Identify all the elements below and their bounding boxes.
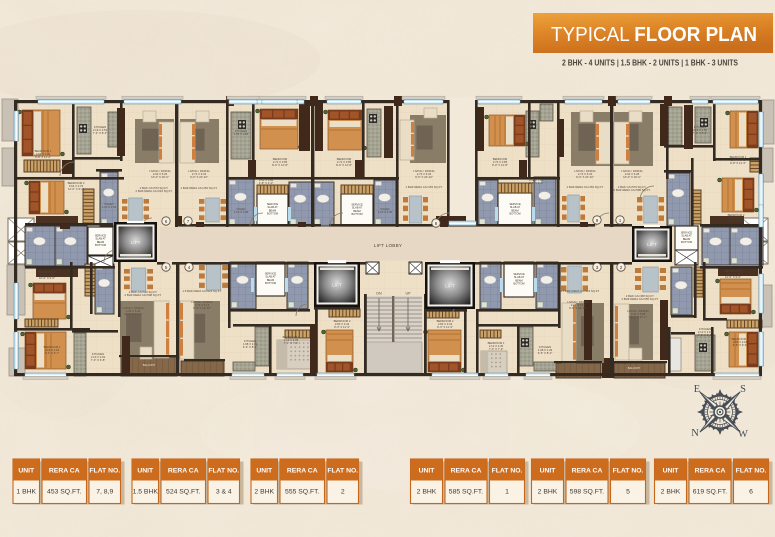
svg-text:BEDROOM 12.94 X 3.429'-8" X 11: BEDROOM 12.94 X 3.429'-8" X 11'-3" <box>35 149 52 159</box>
svg-text:FLAT NO.: FLAT NO. <box>208 468 239 475</box>
svg-text:FLAT NO.: FLAT NO. <box>492 468 523 475</box>
svg-text:BEDROOM 12.84 X 2.929'-4" X 9': BEDROOM 12.84 X 2.929'-4" X 9'-7" <box>44 345 61 355</box>
svg-text:9: 9 <box>596 218 599 223</box>
svg-text:UNIT: UNIT <box>18 468 35 475</box>
svg-text:BEDROOM 12.12 X 2.357'-0" X 7': BEDROOM 12.12 X 2.357'-0" X 7'-9" <box>488 341 505 351</box>
svg-text:BEDROOM 22.82 X 3.429'-3" X 11: BEDROOM 22.82 X 3.429'-3" X 11'-3" <box>437 319 454 329</box>
svg-text:RERA CA: RERA CA <box>168 468 199 475</box>
svg-text:KITCHEN2.19 X 2.527'-2" X 8'-3: KITCHEN2.19 X 2.527'-2" X 8'-3" <box>693 125 708 135</box>
svg-text:BEDROOM2.74 X 3.859'-0" X 12'-: BEDROOM2.74 X 3.859'-0" X 12'-8" <box>492 157 508 167</box>
svg-text:BEDROOM 12.12 X 2.357'-0" X 7': BEDROOM 12.12 X 2.357'-0" X 7'-9" <box>283 335 300 345</box>
svg-text:BEDROOM2.74 X 3.859'-0" X 12'-: BEDROOM2.74 X 3.859'-0" X 12'-8" <box>336 157 352 167</box>
svg-text:2 BHK: 2 BHK <box>538 489 558 496</box>
svg-text:BOTTOM: BOTTOM <box>351 212 362 216</box>
svg-text:BEDROOM 23.64 X 2.7612'-0" X 9: BEDROOM 23.64 X 2.7612'-0" X 9'-4" <box>68 181 85 191</box>
svg-text:KITCHEN1.98 X 2.496'-6" X 8'-2: KITCHEN1.98 X 2.496'-6" X 8'-2" <box>243 339 258 349</box>
svg-text:FLAT NO.: FLAT NO. <box>327 468 358 475</box>
svg-text:1 BHK: 1 BHK <box>16 489 36 496</box>
svg-text:LIFT: LIFT <box>131 240 141 246</box>
svg-text:FLAT NO.: FLAT NO. <box>89 468 120 475</box>
svg-text:UNIT: UNIT <box>137 468 154 475</box>
svg-text:2 BHK - 4 UNITS | 1.5 BHK - 2: 2 BHK - 4 UNITS | 1.5 BHK - 2 UNITS | 1 … <box>562 59 738 68</box>
svg-text:1.5 BHK RERA CA=524 SQ.FT.: 1.5 BHK RERA CA=524 SQ.FT. <box>560 289 599 293</box>
svg-text:BOTTOM: BOTTOM <box>509 212 520 216</box>
svg-text:3: 3 <box>596 265 599 270</box>
svg-text:BALCONY: BALCONY <box>143 363 156 367</box>
svg-text:1 BHK RERA CA=453 SQ.FT.: 1 BHK RERA CA=453 SQ.FT. <box>181 186 218 190</box>
svg-text:BEDROOM2.74 X 3.859'-0" X 12'-: BEDROOM2.74 X 3.859'-0" X 12'-8" <box>272 157 288 167</box>
svg-text:BOTTOM: BOTTOM <box>513 282 524 286</box>
svg-text:1 BHK RERA CA=453 SQ.FT.: 1 BHK RERA CA=453 SQ.FT. <box>567 185 604 189</box>
svg-text:S: S <box>740 384 746 395</box>
svg-text:6: 6 <box>165 219 168 224</box>
svg-text:RERA CA: RERA CA <box>451 468 482 475</box>
svg-text:N: N <box>691 428 699 439</box>
svg-text:KITCHEN1.55 X 2.85: KITCHEN1.55 X 2.85 <box>234 129 249 136</box>
svg-text:619 SQ.FT.: 619 SQ.FT. <box>693 489 727 496</box>
svg-text:BEDROOM 23.04 X 2.7412'-0" X 9: BEDROOM 23.04 X 2.7412'-0" X 9'-0" <box>725 269 742 279</box>
svg-text:2 BHK CA=530 SQ.FT.2 BHK RERA: 2 BHK CA=530 SQ.FT.2 BHK RERA CA=598 SQ.… <box>125 290 162 297</box>
svg-text:UNIT: UNIT <box>256 468 273 475</box>
svg-text:7: 7 <box>187 219 190 224</box>
svg-text:KITCHEN2.19 X 2.527'-2" X 8'-3: KITCHEN2.19 X 2.527'-2" X 8'-3" <box>93 125 108 135</box>
svg-text:KITCHEN2.10 X 2.027'-0" X 6'-8: KITCHEN2.10 X 2.027'-0" X 6'-8" <box>698 327 713 337</box>
svg-text:BOTTOM: BOTTOM <box>95 243 106 247</box>
svg-text:598 SQ.FT.: 598 SQ.FT. <box>570 489 604 496</box>
svg-text:2 BHK CA=570 SQ.FT.2 BHK RERA: 2 BHK CA=570 SQ.FT.2 BHK RERA CA=619 SQ.… <box>136 186 173 193</box>
svg-text:5: 5 <box>626 489 630 496</box>
svg-text:KITCHEN1.98 X 2.496'-6" X 8'-2: KITCHEN1.98 X 2.496'-6" X 8'-2" <box>538 345 553 355</box>
svg-text:3 & 4: 3 & 4 <box>216 489 232 496</box>
svg-text:RERA CA: RERA CA <box>572 468 603 475</box>
svg-text:BEDROOM 23.04 X 2.7410'-0" X 9: BEDROOM 23.04 X 2.7410'-0" X 9'-0" <box>39 270 56 280</box>
svg-text:LIFT: LIFT <box>445 284 455 290</box>
svg-text:2 BHK: 2 BHK <box>417 489 437 496</box>
svg-text:1: 1 <box>619 218 622 223</box>
svg-text:LIFT: LIFT <box>332 283 342 289</box>
svg-text:1.5 BHK RERA CA=524 SQ.FT.: 1.5 BHK RERA CA=524 SQ.FT. <box>182 289 221 293</box>
svg-text:RERA CA: RERA CA <box>695 468 726 475</box>
svg-text:FLAT NO.: FLAT NO. <box>736 468 767 475</box>
svg-text:453 SQ.FT.: 453 SQ.FT. <box>47 489 81 496</box>
svg-text:8: 8 <box>435 221 438 226</box>
svg-text:BOTTOM: BOTTOM <box>265 281 276 285</box>
svg-text:BEDROOM 12.84 X 2.929'-8" X 9': BEDROOM 12.84 X 2.929'-8" X 9'-6" <box>732 337 749 347</box>
svg-text:2 BHK: 2 BHK <box>254 489 274 496</box>
svg-text:2 BHK CA=579 SQ.FT.2 BHK RERA: 2 BHK CA=579 SQ.FT.2 BHK RERA CA=585 SQ.… <box>614 185 651 192</box>
svg-text:UNIT: UNIT <box>419 468 436 475</box>
svg-text:KITCHEN2.10 X 2.027'-0" X 6'-8: KITCHEN2.10 X 2.027'-0" X 6'-8" <box>91 352 106 362</box>
svg-text:RERA CA: RERA CA <box>49 468 80 475</box>
svg-text:2: 2 <box>341 489 345 496</box>
svg-text:BEDROOM 23.64 X 2.7612'-0" X 9: BEDROOM 23.64 X 2.7612'-0" X 9'-4" <box>728 213 745 223</box>
svg-text:DN: DN <box>376 292 382 296</box>
svg-text:5: 5 <box>165 265 168 270</box>
svg-text:W: W <box>738 429 748 440</box>
svg-text:BOTTOM: BOTTOM <box>267 212 278 216</box>
svg-text:1.5 BHK: 1.5 BHK <box>133 489 159 496</box>
svg-text:RERA CA: RERA CA <box>287 468 318 475</box>
svg-text:524 SQ.FT.: 524 SQ.FT. <box>166 489 200 496</box>
svg-text:E: E <box>694 384 700 395</box>
svg-text:1: 1 <box>505 489 509 496</box>
svg-text:LIFT LOBBY: LIFT LOBBY <box>374 243 402 248</box>
svg-text:UP: UP <box>406 292 412 296</box>
svg-text:FLAT NO.: FLAT NO. <box>613 468 644 475</box>
svg-text:BEDROOM 22.82 X 3.429'-3" X 11: BEDROOM 22.82 X 3.429'-3" X 11'-3" <box>334 319 351 329</box>
svg-text:0.52 X 0.661'-8" X 2'-0": 0.52 X 0.661'-8" X 2'-0" <box>529 178 544 185</box>
svg-text:LIFT: LIFT <box>647 242 657 248</box>
svg-text:BEDROOM 12.94 X 3.429'-8" X 11: BEDROOM 12.94 X 3.429'-8" X 11'-3" <box>730 155 747 165</box>
svg-text:0.52 X 0.661'-8" X 2'-0": 0.52 X 0.661'-8" X 2'-0" <box>259 178 274 185</box>
svg-text:4: 4 <box>188 265 191 270</box>
svg-text:BOTTOM: BOTTOM <box>681 240 692 244</box>
svg-text:2 BHK CA=458 SQ.FT.2 BHK RERA: 2 BHK CA=458 SQ.FT.2 BHK RERA CA=555 SQ.… <box>622 294 659 301</box>
svg-text:585 SQ.FT.: 585 SQ.FT. <box>449 489 483 496</box>
svg-text:UNIT: UNIT <box>663 468 680 475</box>
svg-text:2 BHK: 2 BHK <box>661 489 681 496</box>
svg-text:7, 8,9: 7, 8,9 <box>96 489 113 496</box>
svg-text:6: 6 <box>749 489 753 496</box>
svg-text:2: 2 <box>620 265 623 270</box>
svg-text:555 SQ.FT.: 555 SQ.FT. <box>285 489 319 496</box>
svg-text:UNIT: UNIT <box>540 468 557 475</box>
svg-text:TYPICAL FLOOR PLAN: TYPICAL FLOOR PLAN <box>551 23 757 46</box>
svg-text:BALCONY: BALCONY <box>628 366 641 370</box>
svg-text:1 BHK RERA CA=453 SQ.FT.: 1 BHK RERA CA=453 SQ.FT. <box>406 185 443 189</box>
